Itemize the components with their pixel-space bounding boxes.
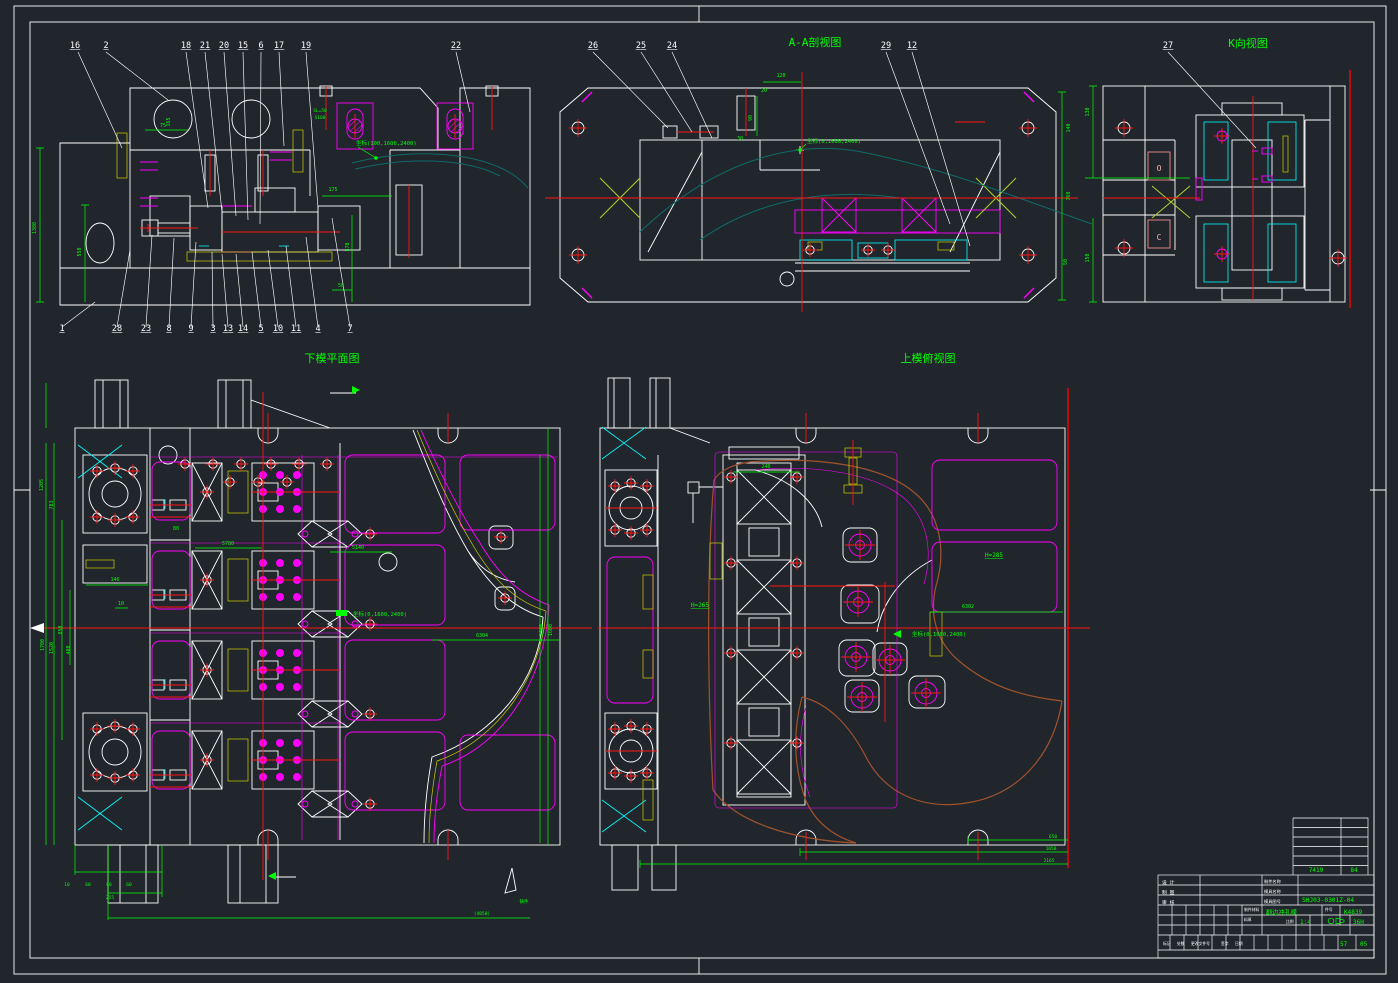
dim: 6304 [476,633,488,639]
tb-label-material: 制件材料 [1244,907,1259,912]
dim: 10 [118,601,124,607]
k-centerlines [1103,96,1253,300]
dim: 165 [166,117,172,126]
dim: 175 [328,187,337,193]
section-letter-o: O [1157,164,1162,173]
dim: 80 [173,526,179,532]
view-aa-section: 2625242912120209030坐标(0,1600,2400)140760… [545,41,1092,312]
dim: 130 [1085,107,1091,116]
dim: (4050) [474,911,490,917]
height-note: H=265 [691,602,709,609]
dim: 850 [58,625,64,634]
dim: S100 [315,115,326,121]
dim: 120 [776,73,785,79]
balloon-leaders [593,52,970,246]
view-lower-die-plan: 1461080120578317001520850400578051406304… [30,380,592,920]
dim: 650 [1049,834,1057,840]
dim: 30 [737,136,743,142]
balloon-leaders [1168,52,1256,148]
dim: 1380 [32,222,38,234]
upper-plan-outline [600,378,1065,890]
dim: 570 [345,242,351,251]
view-title-k-view: K向视图 [1228,36,1268,50]
upper-plan-centerlines [598,413,1090,860]
dim: 255 [106,895,114,901]
dim: 783 [49,500,55,509]
tb-label-design: 设 计 [1162,879,1175,886]
k-magenta-details [1196,148,1272,200]
view-k-direction: 27130150OC [1085,41,1350,308]
dim: 2165 [1044,858,1055,864]
upper-plan-dimensions [640,472,1068,868]
main-section-outline [60,86,530,305]
dim: 6302 [962,604,974,610]
tb-label-check: 审 核 [1162,899,1175,906]
coordinate-note: 坐标(0,1600,2400) [912,630,966,638]
tb-label-change-doc: 更改文件号 [1191,941,1210,946]
dim: 5780 [222,541,234,547]
dim: 140 [1066,123,1072,132]
dim: 50 [338,283,344,289]
dim: 1700 [40,639,46,651]
tb-label-scale: 比例 [1286,919,1294,924]
k-guide-bushing-hatch [1204,122,1296,282]
lower-plan-hatching [86,471,248,781]
dim: 60 [85,882,91,888]
dim: 550 [77,247,83,256]
view-main-section: 1621821201561719221282389313145101147751… [32,41,530,334]
main-section-dimensions [36,130,392,302]
tb-die-name-value: 翻边冲孔模 [1266,909,1297,917]
tb-label-count: 处数 [1177,941,1185,946]
dim: 240 [761,464,770,470]
tb-scale-value: 1:4 [1300,919,1311,926]
tb-material-value: 36H [1353,919,1364,926]
tb-label-die-name: 模具名称 [1264,888,1281,895]
dim: SL=50 [313,108,327,114]
aa-dimensions [757,82,1066,300]
dim: 90 [748,115,754,121]
centering-marks [14,6,1386,974]
tb-label-item-no: 件号 [1325,907,1333,912]
tb-label-sign: 签字 [1221,941,1229,946]
dim: 10 [64,882,70,888]
lower-plan-outline [75,380,560,903]
dim: 80 [106,882,112,888]
view-title-upper-die-plan: 上模俯视图 [901,351,956,365]
height-note: H=285 [985,552,1003,559]
dim: 146 [110,577,119,583]
section-letter-c: C [1157,233,1162,242]
k-lifting-cross [1152,186,1190,218]
view-upper-die-plan: 240H=265H=2856302坐标(0,1600,2400)65010502… [598,378,1090,890]
tb-code-value: K4839 [1344,909,1362,916]
dim: 760 [1066,191,1072,200]
aa-outline [560,88,1056,302]
dim: 20 [761,88,767,94]
fender-profile-curve [640,148,1092,240]
dim: 1520 [49,642,55,654]
tb-label-part-name: 制件名称 [1264,878,1281,885]
tb-label-die-number: 模具图号 [1264,898,1281,905]
tb-label-date: 日期 [1235,941,1243,946]
tb-sheet-number: 05 [1360,941,1368,948]
dim: 1050 [1046,846,1057,852]
upper-plan-magenta-details [607,452,1057,808]
view-title-aa-section: A-A剖视图 [789,35,842,49]
coordinate-note: 坐标(0,1600,2400) [353,610,407,618]
tb-label-thickness: 料厚 [1244,917,1252,922]
title-block: 741984设 计制 图审 核制件名称模具名称模具图号SHJ03-0301Z-0… [1158,818,1374,958]
part-code: 7419 [1309,867,1324,874]
datum-arrow [30,623,44,633]
tb-sheet-count: 57 [1340,941,1348,948]
lower-plan-centerlines [40,392,592,880]
coordinate-note: 坐标(100,1600,2400) [356,139,417,147]
tb-label-draft: 制 图 [1162,889,1175,896]
k-dimensions [1085,86,1190,302]
dim: 400 [66,645,72,654]
dim: 1300 [539,624,545,636]
dim: 1205 [39,479,45,491]
title-block-grid [1158,818,1374,958]
part-code: 84 [1350,867,1358,874]
tb-drawing-number: SHJ03-0301Z-04 [1302,897,1354,904]
note: 铸件 [520,898,529,905]
cad-drawing-canvas: A-A剖视图K向视图下模平面图上模俯视图 [0,0,1398,983]
dim: 150 [1085,253,1091,262]
dim: 5140 [352,545,364,551]
fender-profile-curve [352,154,528,188]
dim: 1600 [548,624,554,636]
k-outline [1103,86,1345,302]
cad-sheet: A-A剖视图K向视图下模平面图上模俯视图 [0,0,1398,983]
projection-symbol-icon [1328,918,1344,924]
aa-centerlines [545,72,1078,312]
sheet-titles: A-A剖视图K向视图下模平面图上模俯视图 [305,35,1268,365]
tb-label-mark: 标记 [1163,941,1171,946]
lower-plan-punch-dots [259,471,301,781]
coordinate-note: 坐标(0,1600,2400) [807,137,861,145]
dim: 60 [126,882,132,888]
aa-magenta-details [582,92,1034,298]
dim: 50 [1063,259,1069,265]
view-title-lower-die-plan: 下模平面图 [305,352,360,365]
sheet-frame [14,6,1386,974]
